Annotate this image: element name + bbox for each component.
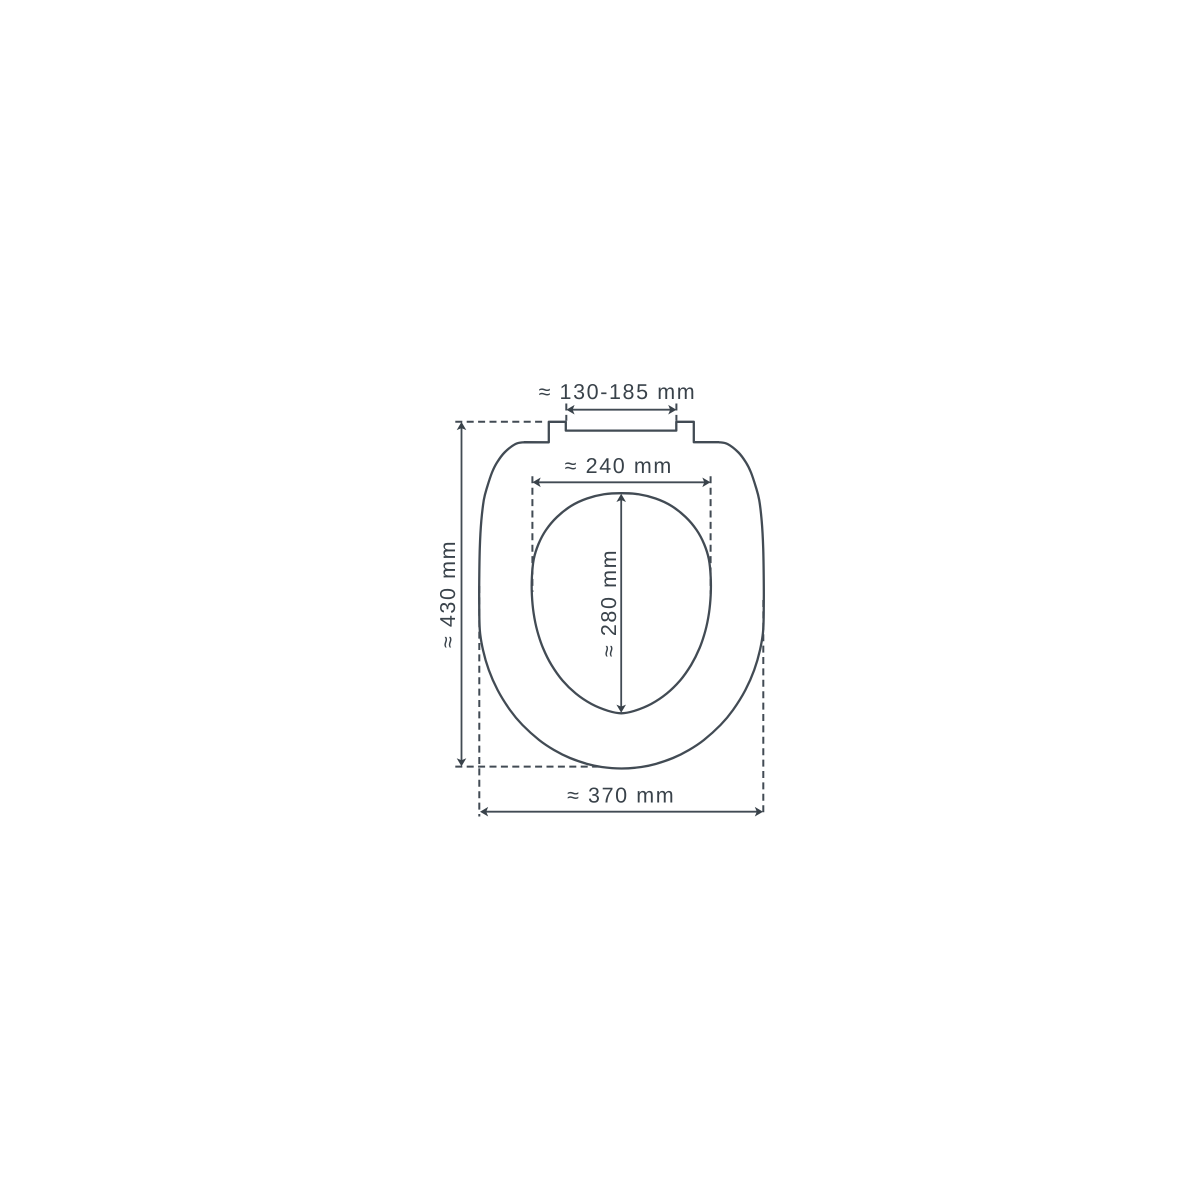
svg-text:≈ 130-185 mm: ≈ 130-185 mm xyxy=(539,380,697,404)
svg-text:≈ 240 mm: ≈ 240 mm xyxy=(565,454,673,478)
svg-text:≈ 430 mm: ≈ 430 mm xyxy=(436,540,460,648)
svg-text:≈ 370 mm: ≈ 370 mm xyxy=(567,783,675,807)
svg-text:≈ 280 mm: ≈ 280 mm xyxy=(597,549,621,657)
